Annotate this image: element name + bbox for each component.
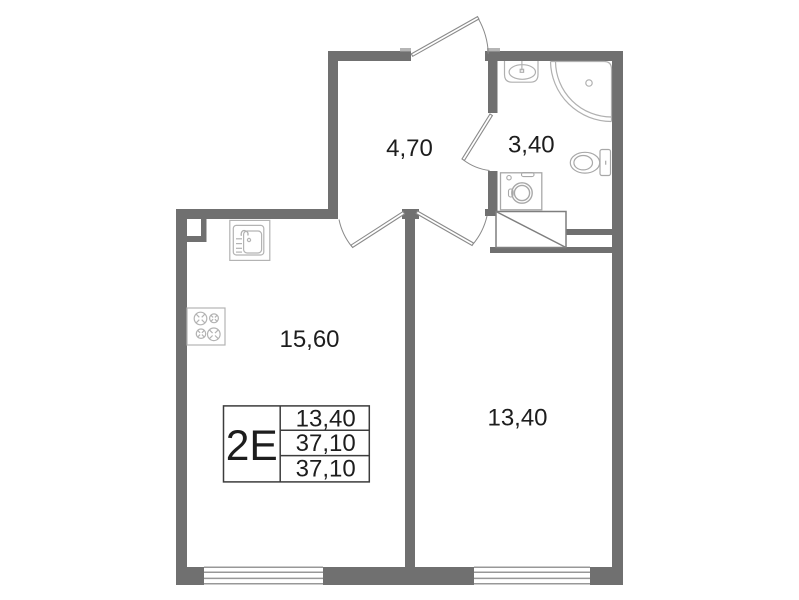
svg-text:13,40: 13,40 [296,406,356,433]
svg-text:2E: 2E [226,423,278,470]
svg-text:13,40: 13,40 [487,404,547,431]
svg-text:37,10: 37,10 [296,430,356,457]
svg-text:3,40: 3,40 [508,132,555,159]
svg-text:37,10: 37,10 [296,455,356,482]
svg-text:15,60: 15,60 [279,326,339,353]
svg-text:4,70: 4,70 [386,135,433,162]
